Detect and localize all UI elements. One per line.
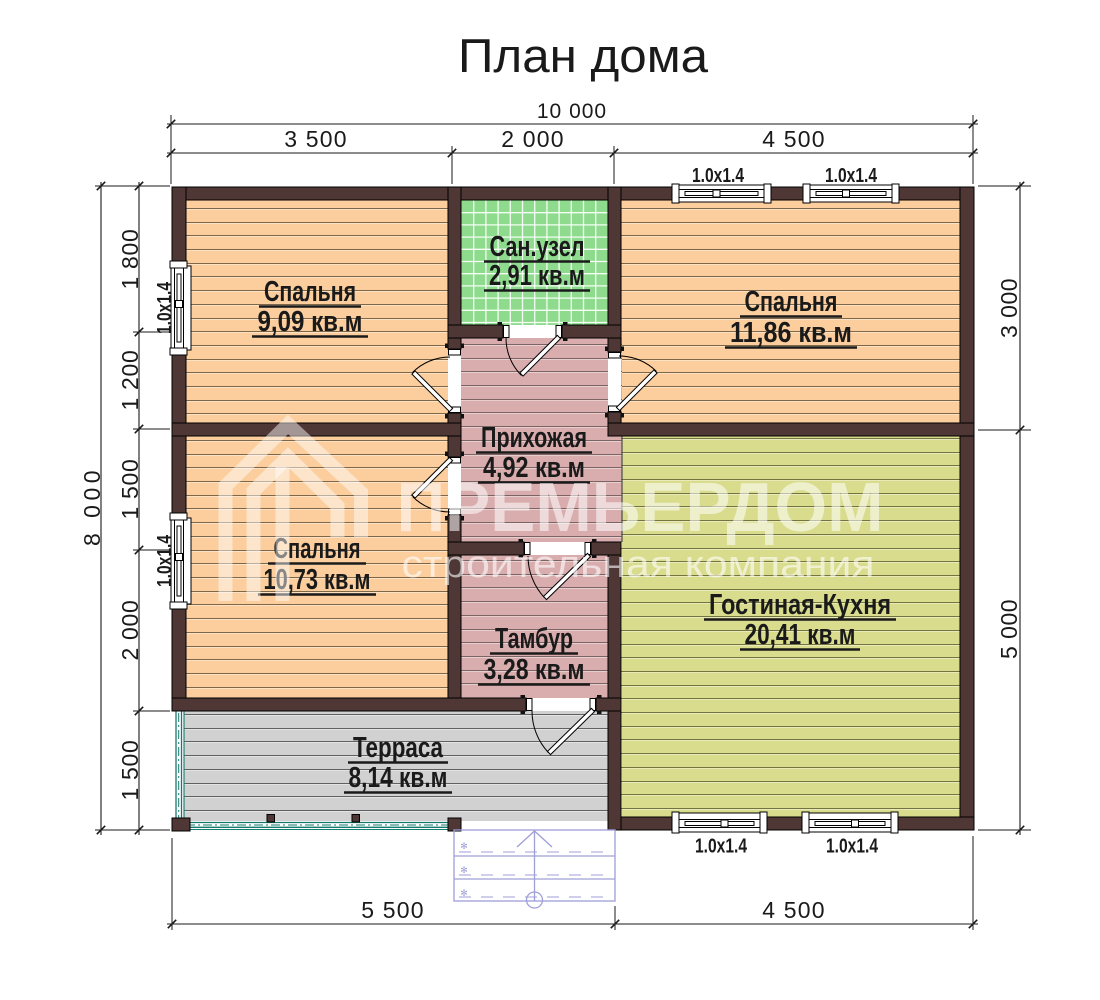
svg-text:3,28 кв.м: 3,28 кв.м [484, 654, 585, 686]
svg-text:ПРЕМЬЕРДОМ: ПРЕМЬЕРДОМ [397, 468, 884, 546]
svg-text:План дома: План дома [458, 29, 709, 82]
svg-text:2,91 кв.м: 2,91 кв.м [489, 260, 585, 292]
svg-text:1 500: 1 500 [117, 739, 143, 800]
svg-text:Спальня: Спальня [745, 286, 838, 318]
svg-text:✻: ✻ [460, 865, 468, 875]
svg-text:5 000: 5 000 [996, 599, 1022, 659]
svg-text:✻: ✻ [460, 841, 468, 851]
svg-text:20,41 кв.м: 20,41 кв.м [745, 619, 856, 651]
svg-text:5 500: 5 500 [361, 897, 425, 923]
svg-text:8,14 кв.м: 8,14 кв.м [349, 762, 448, 794]
svg-text:4 500: 4 500 [762, 126, 826, 152]
svg-text:8 000: 8 000 [79, 466, 105, 546]
svg-text:3 000: 3 000 [996, 278, 1022, 338]
svg-text:Спальня: Спальня [264, 276, 356, 308]
svg-text:1.0х1.4: 1.0х1.4 [695, 836, 748, 858]
svg-text:1 800: 1 800 [117, 228, 143, 289]
svg-text:1.0х1.4: 1.0х1.4 [825, 165, 878, 187]
svg-text:2 000: 2 000 [117, 599, 143, 660]
svg-text:2 000: 2 000 [501, 126, 565, 152]
svg-text:1.0х1.4: 1.0х1.4 [826, 836, 879, 858]
svg-text:Терраса: Терраса [353, 732, 444, 764]
svg-text:9,09 кв.м: 9,09 кв.м [258, 306, 363, 338]
svg-text:1.0х1.4: 1.0х1.4 [154, 281, 176, 334]
svg-text:1.0х1.4: 1.0х1.4 [692, 165, 745, 187]
svg-text:Гостиная-Кухня: Гостиная-Кухня [709, 589, 891, 621]
svg-text:3 500: 3 500 [284, 126, 348, 152]
svg-text:10 000: 10 000 [537, 100, 607, 123]
svg-text:строительная компания: строительная компания [402, 544, 875, 586]
svg-text:✻: ✻ [460, 888, 468, 898]
svg-text:1.0х1.4: 1.0х1.4 [154, 534, 176, 587]
svg-text:11,86 кв.м: 11,86 кв.м [730, 317, 852, 349]
svg-text:4 500: 4 500 [762, 897, 826, 923]
svg-text:Сан.узел: Сан.узел [490, 231, 585, 263]
svg-text:Тамбур: Тамбур [495, 623, 573, 655]
svg-text:1 500: 1 500 [117, 458, 143, 519]
svg-text:1 200: 1 200 [117, 349, 143, 410]
svg-text:Прихожая: Прихожая [481, 422, 587, 454]
